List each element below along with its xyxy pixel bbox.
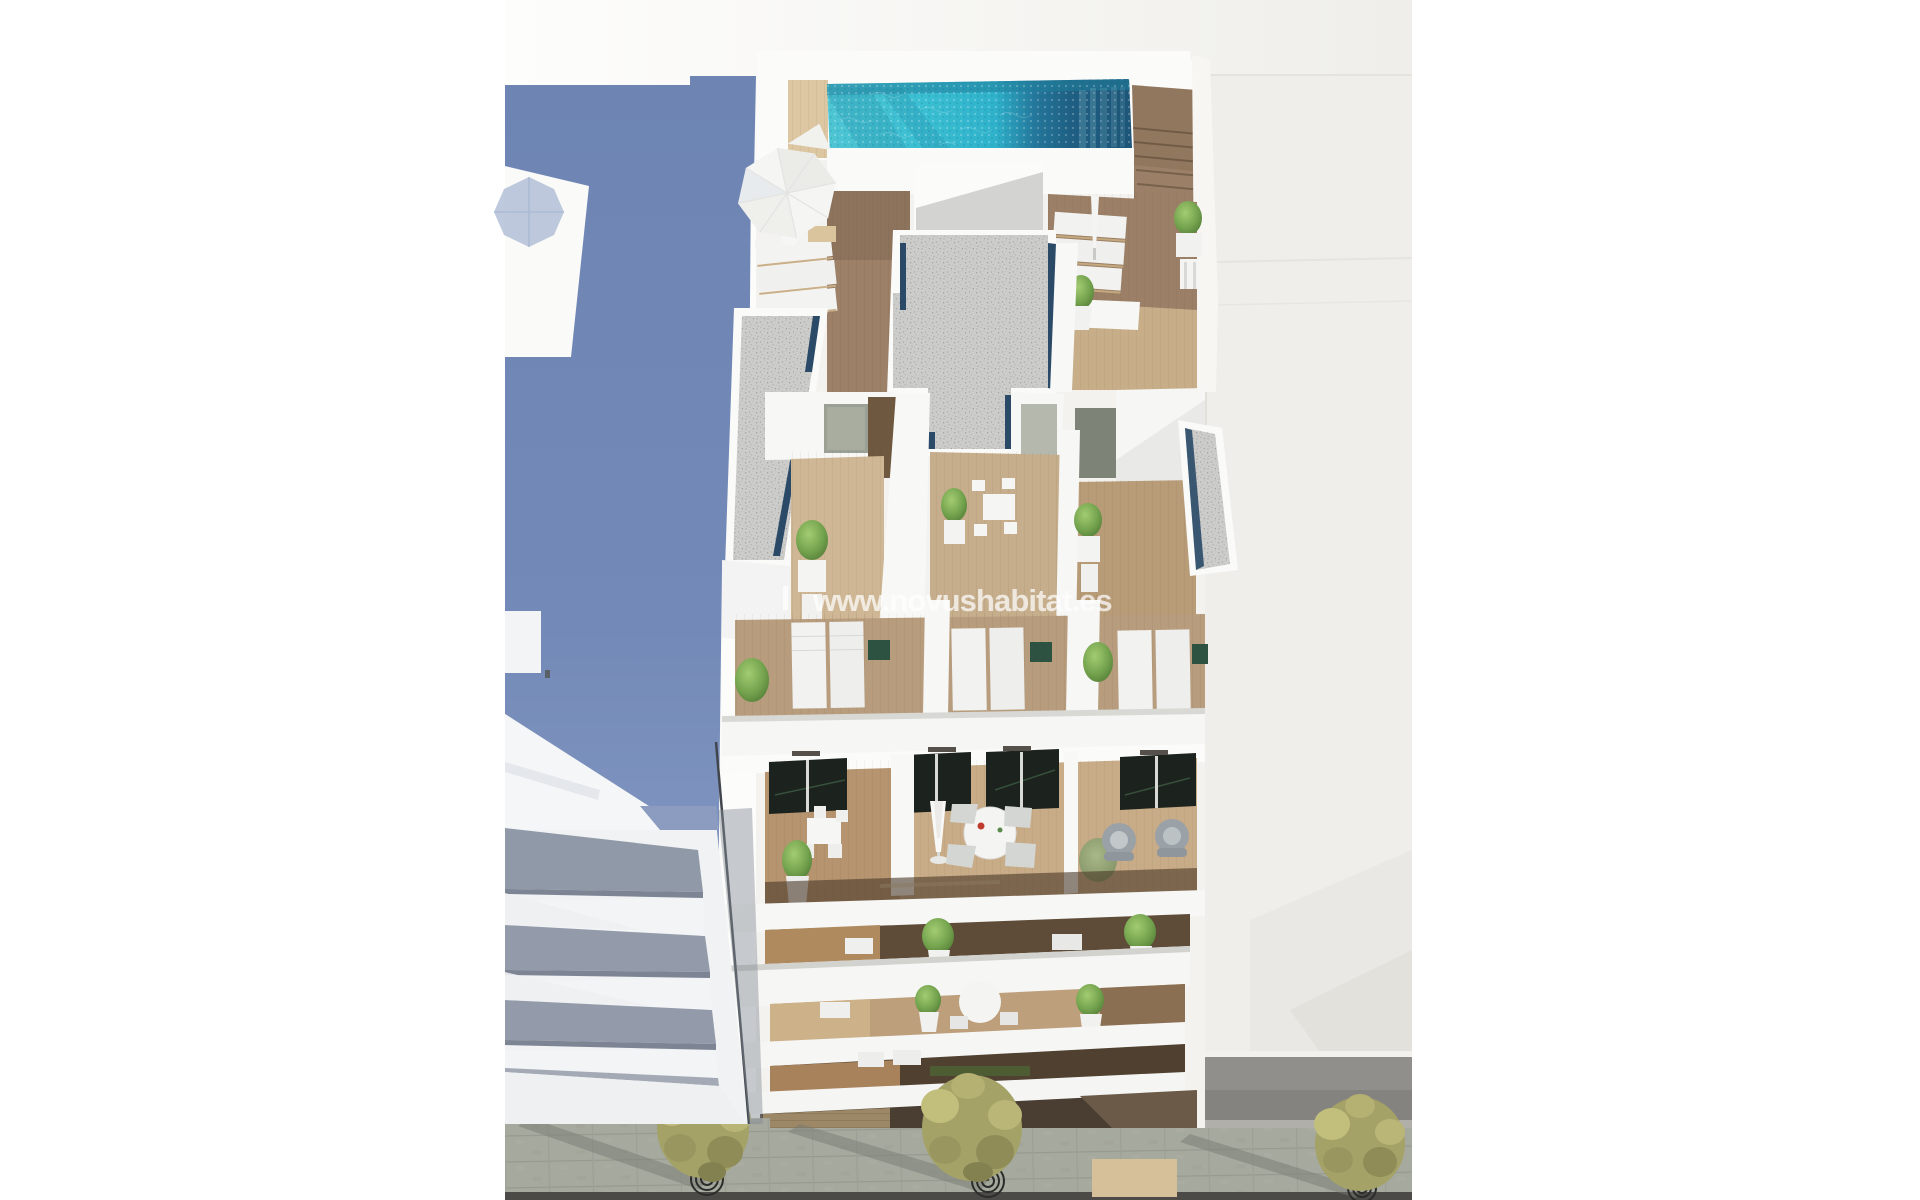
svg-text:www.novushabitat.es: www.novushabitat.es xyxy=(812,583,1112,618)
